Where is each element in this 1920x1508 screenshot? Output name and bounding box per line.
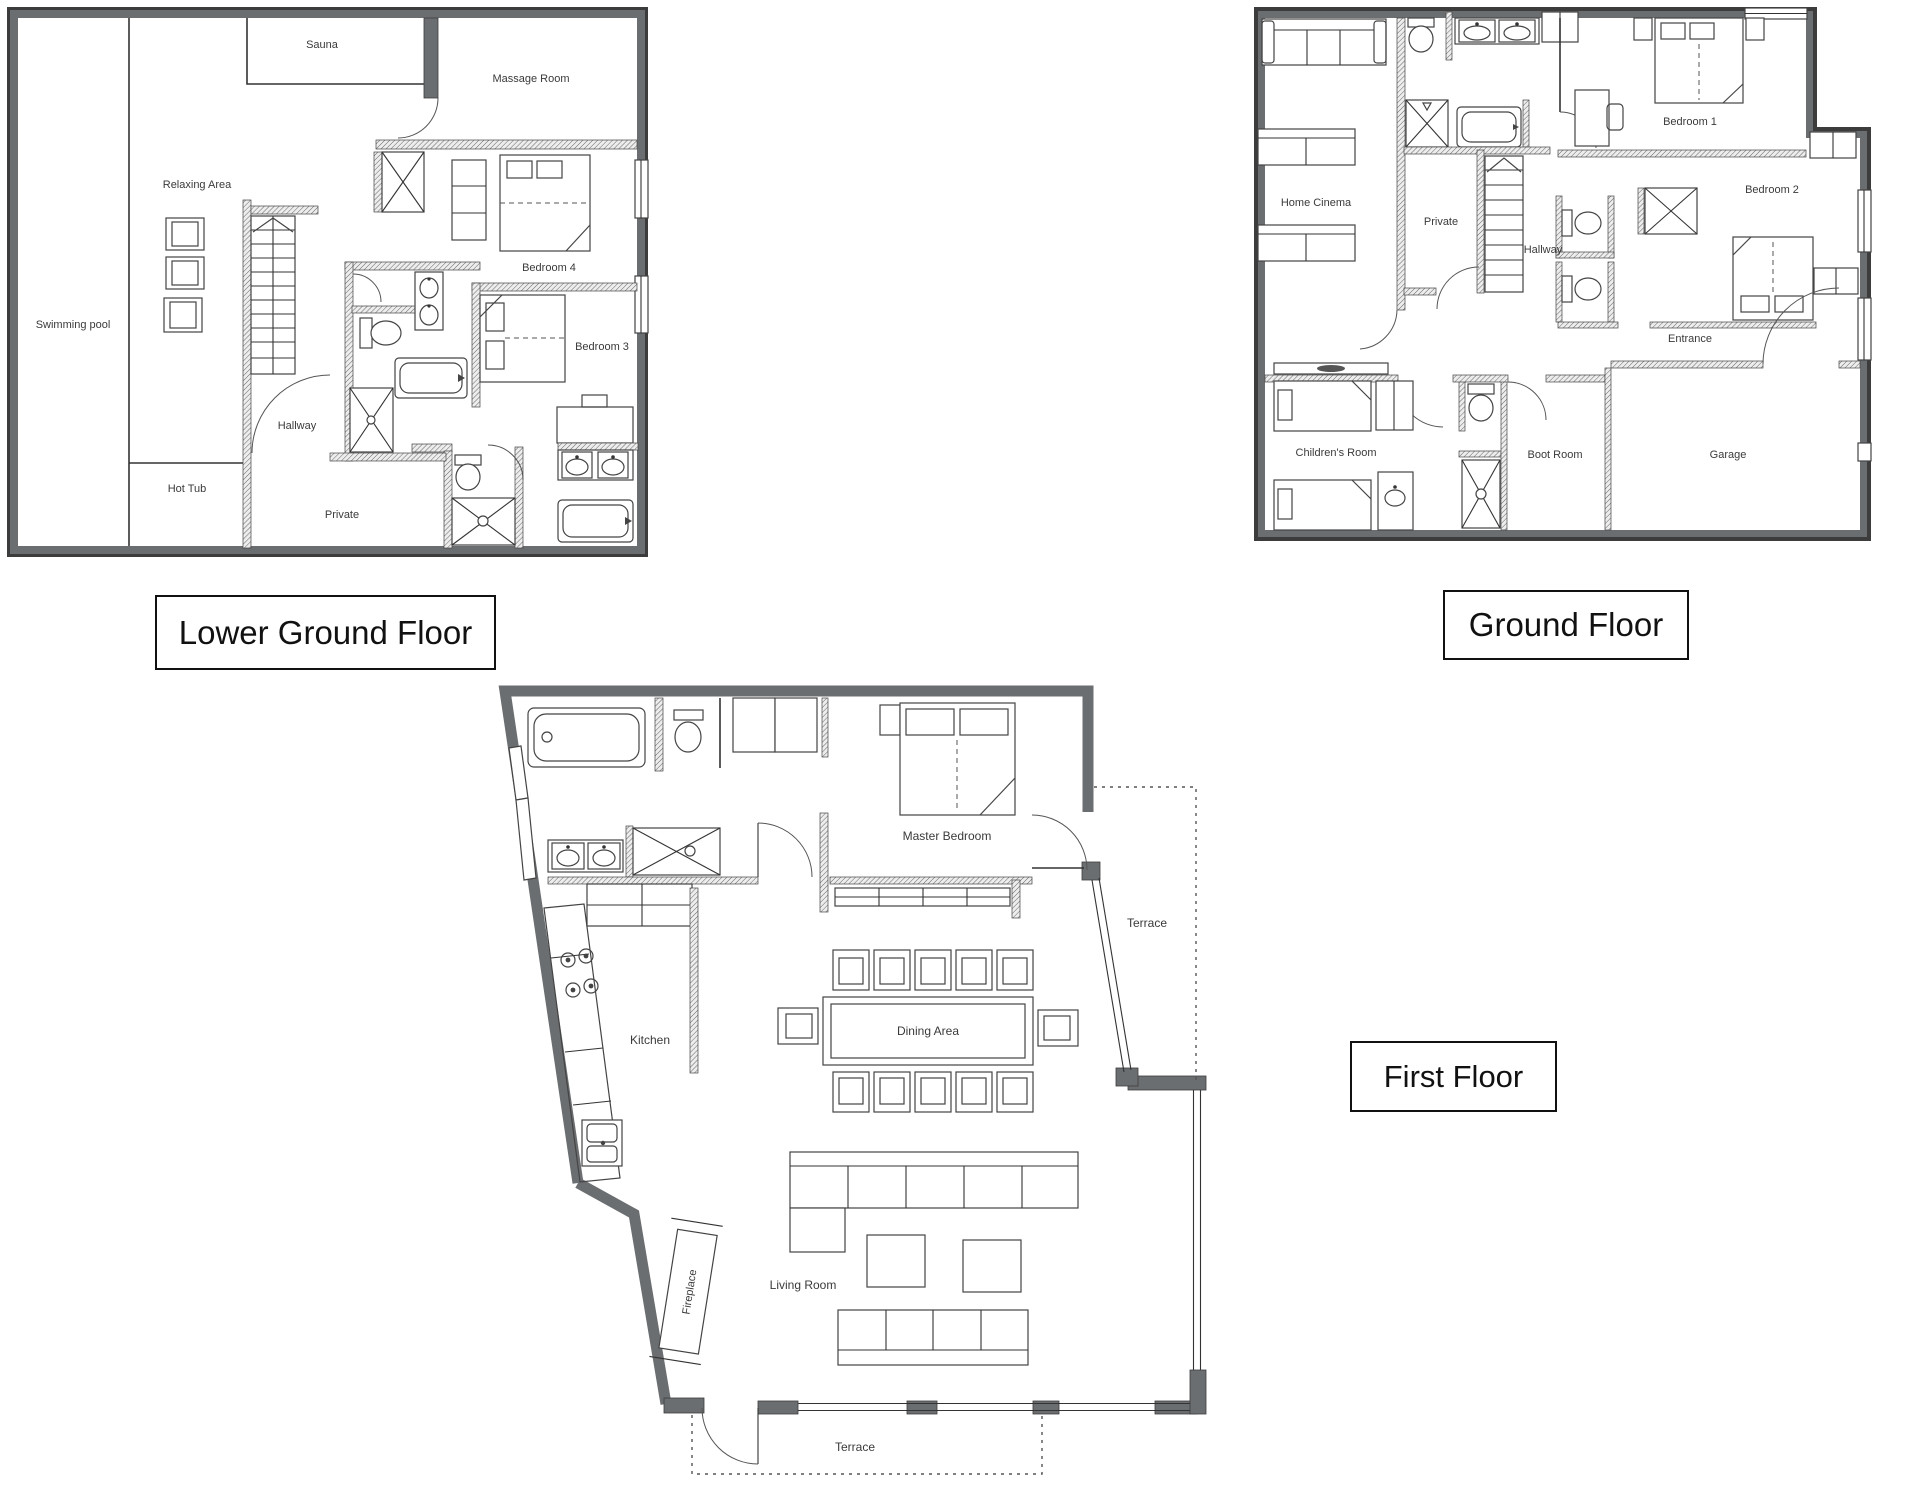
lower-ground-floor-plan: Sauna Massage Room Relaxing Area Swimmin… (7, 7, 648, 557)
shower-icon (452, 498, 515, 545)
bed-icon (1274, 480, 1371, 530)
room-label-garage: Garage (1710, 449, 1747, 461)
sofa-icon (1262, 19, 1386, 65)
bed-icon (900, 703, 1015, 815)
room-label-hottub: Hot Tub (168, 483, 207, 495)
bed-icon (1733, 237, 1813, 320)
room-label-master: Master Bedroom (903, 829, 992, 843)
room-label-bedroom1: Bedroom 1 (1663, 116, 1717, 128)
room-label-bedroom2: Bedroom 2 (1745, 184, 1799, 196)
room-label-sauna: Sauna (306, 39, 339, 51)
wardrobe-icon (1376, 381, 1413, 430)
sink-icon (548, 840, 623, 872)
wardrobe-icon (733, 698, 817, 752)
shower-icon (350, 388, 393, 452)
room-label-bedroom3: Bedroom 3 (575, 341, 629, 353)
sink-icon (415, 272, 443, 330)
bed-icon (500, 155, 590, 251)
bathtub-icon (528, 708, 645, 767)
room-label-terrace-upper: Terrace (1127, 916, 1167, 930)
sink-icon (1378, 472, 1413, 530)
room-label-kitchen: Kitchen (630, 1033, 670, 1047)
room-label-private-gf: Private (1424, 216, 1458, 228)
sink-icon (1455, 18, 1539, 44)
room-label-massage: Massage Room (492, 73, 569, 85)
wardrobe-icon (1810, 132, 1856, 158)
sofa-icon (838, 1310, 1028, 1365)
room-label-childrens: Children's Room (1296, 447, 1377, 459)
bathtub-icon (558, 500, 633, 542)
title-first-floor: First Floor (1350, 1041, 1557, 1112)
room-label-terrace-lower: Terrace (835, 1440, 875, 1454)
room-label-bedroom4: Bedroom 4 (522, 262, 576, 274)
room-label-relaxing: Relaxing Area (163, 179, 232, 191)
floorplans-svg: Sauna Massage Room Relaxing Area Swimmin… (0, 0, 1920, 1508)
bed-icon (1655, 18, 1743, 103)
sofa-icon (1258, 129, 1355, 165)
title-ground-floor: Ground Floor (1443, 590, 1689, 660)
bathtub-icon (1457, 107, 1521, 147)
room-label-pool: Swimming pool (36, 319, 111, 331)
sofa-icon (790, 1152, 1078, 1252)
room-label-entrance: Entrance (1668, 333, 1712, 345)
wardrobe-icon (835, 888, 1010, 906)
toilet-icon (674, 710, 703, 752)
room-label-hallway-gf: Hallway (1524, 244, 1563, 256)
room-label-living: Living Room (770, 1278, 837, 1292)
sofa-icon (1258, 225, 1355, 261)
room-label-homecinema: Home Cinema (1281, 197, 1352, 209)
toilet-icon (1408, 18, 1434, 52)
fireplace-icon: Fireplace (649, 1218, 722, 1364)
media-console-icon (1274, 363, 1388, 374)
shower-icon (1462, 460, 1500, 528)
toilet-icon (1468, 384, 1494, 421)
ground-floor-plan: Home Cinema Private Hallway Bedroom 1 Be… (1254, 7, 1871, 541)
chair-icon (164, 218, 204, 332)
room-label-hallway-lg: Hallway (278, 420, 317, 432)
room-label-bootroom: Boot Room (1527, 449, 1582, 461)
toilet-icon (455, 455, 481, 490)
shower-icon (1406, 100, 1448, 147)
sink-icon (582, 1120, 622, 1166)
chair-icon (867, 1235, 1021, 1292)
shower-icon (1645, 188, 1697, 234)
floorplan-sheet: Sauna Massage Room Relaxing Area Swimmin… (0, 0, 1920, 1508)
bathtub-icon (395, 358, 467, 398)
room-label-dining: Dining Area (897, 1024, 959, 1038)
sink-icon (558, 450, 633, 480)
first-floor-plan: Fireplace Master Bedroom Terrace Kitchen… (505, 691, 1206, 1474)
toilet-icon (1562, 210, 1601, 236)
shower-icon (633, 828, 720, 875)
bed-icon (1274, 381, 1371, 431)
shower-icon (382, 152, 424, 212)
room-label-private-lg: Private (325, 509, 359, 521)
bed-icon (480, 295, 565, 382)
toilet-icon (1562, 276, 1601, 302)
title-lower-ground-floor: Lower Ground Floor (155, 595, 496, 670)
wardrobe-icon (452, 160, 486, 240)
